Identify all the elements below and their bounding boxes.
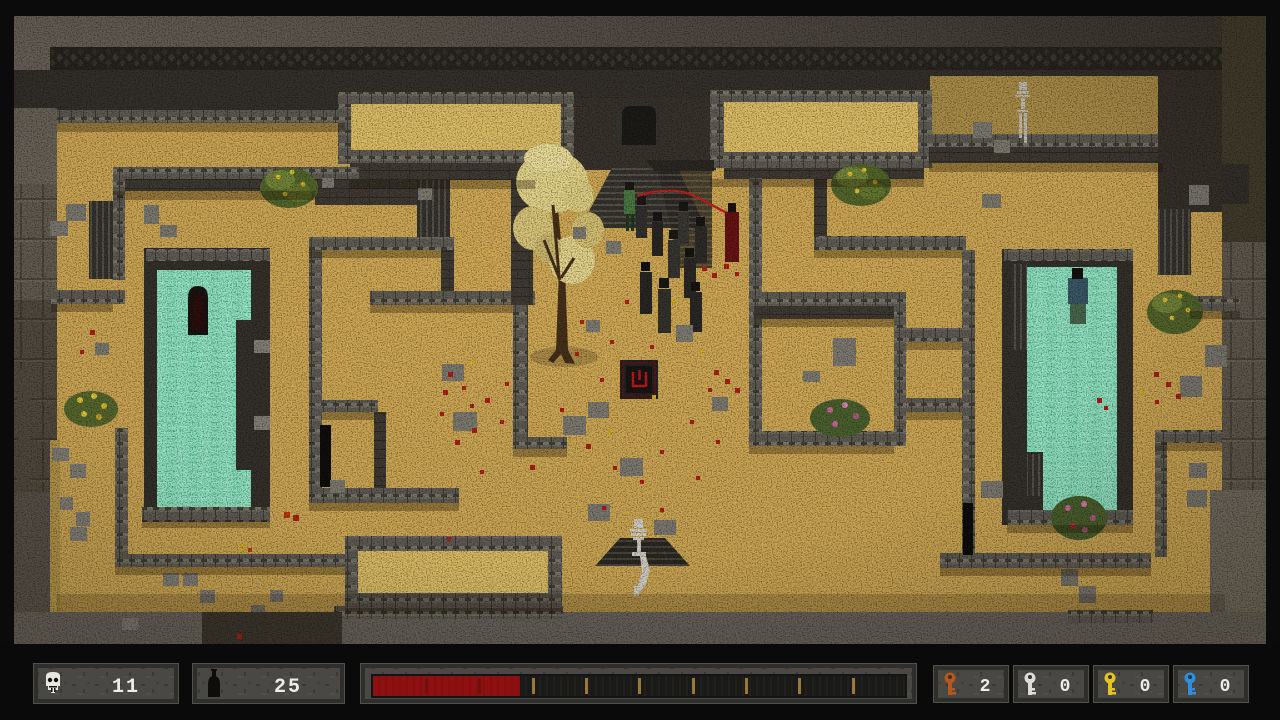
svg-text:11: 11 — [112, 676, 140, 699]
svg-text:25: 25 — [274, 676, 302, 699]
svg-text:2: 2 — [980, 677, 991, 697]
svg-text:0: 0 — [1140, 677, 1151, 697]
svg-text:0: 0 — [1060, 677, 1071, 697]
svg-text:0: 0 — [1220, 677, 1231, 697]
